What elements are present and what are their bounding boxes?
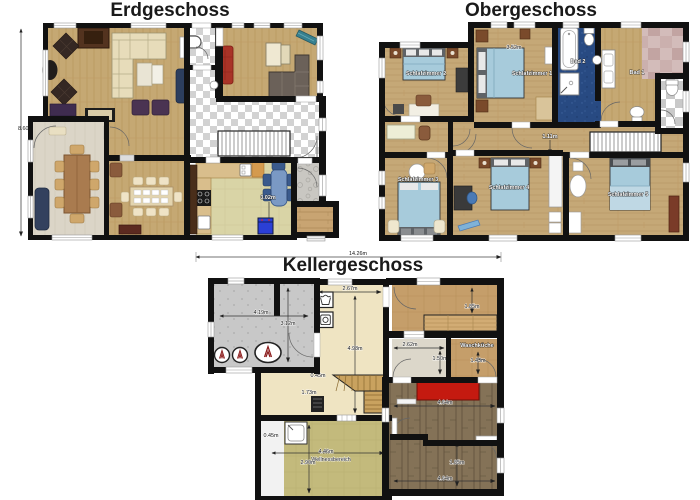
svg-text:1.50m: 1.50m <box>433 356 448 362</box>
svg-text:Erdgeschoss: Erdgeschoss <box>110 0 229 21</box>
svg-text:1.11m: 1.11m <box>542 134 557 140</box>
svg-text:Bad 2: Bad 2 <box>571 59 586 65</box>
svg-text:2.62m: 2.62m <box>403 342 418 348</box>
svg-text:Wellnessbereich: Wellnessbereich <box>311 457 350 463</box>
svg-text:14.26m: 14.26m <box>349 251 367 257</box>
svg-text:Schlafzimmer 5: Schlafzimmer 5 <box>608 192 648 198</box>
svg-text:2.67m: 2.67m <box>343 286 358 292</box>
svg-text:Schlafzimmer 2: Schlafzimmer 2 <box>406 71 446 77</box>
svg-text:4.46m: 4.46m <box>319 449 334 455</box>
svg-text:3.12m: 3.12m <box>281 321 296 327</box>
svg-text:3.52m: 3.52m <box>507 45 522 51</box>
svg-text:3.02m: 3.02m <box>260 195 276 201</box>
svg-text:4.98m: 4.98m <box>348 346 363 352</box>
svg-text:Bad 1: Bad 1 <box>630 70 645 76</box>
svg-text:4.19m: 4.19m <box>254 310 269 316</box>
svg-text:Schlafzimmer 3: Schlafzimmer 3 <box>398 177 438 183</box>
svg-text:Waschküche: Waschküche <box>460 343 493 349</box>
svg-text:4.64m: 4.64m <box>438 476 453 482</box>
svg-text:1.85m: 1.85m <box>450 460 465 466</box>
svg-text:4.64m: 4.64m <box>438 400 453 406</box>
svg-text:Schlafzimmer 1: Schlafzimmer 1 <box>512 71 552 77</box>
svg-text:2.90m: 2.90m <box>301 460 316 466</box>
svg-text:0.45m: 0.45m <box>264 433 279 439</box>
svg-text:1.85m: 1.85m <box>465 304 480 310</box>
svg-text:1.73m: 1.73m <box>302 390 317 396</box>
svg-text:Kellergeschoss: Kellergeschoss <box>283 255 423 276</box>
svg-text:Schlafzimmer 4: Schlafzimmer 4 <box>489 185 530 191</box>
svg-text:Obergeschoss: Obergeschoss <box>465 0 597 21</box>
